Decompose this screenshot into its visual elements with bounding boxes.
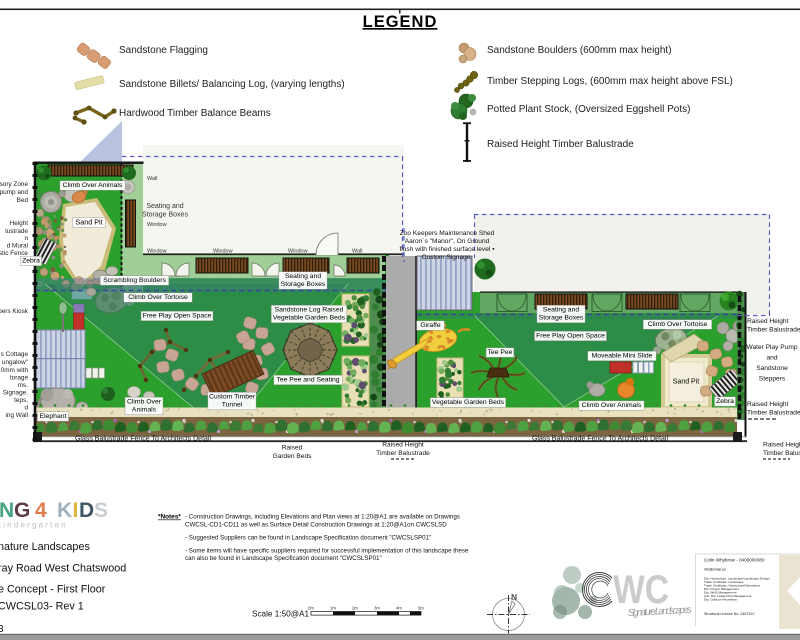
svg-text:Custom Timber: Custom Timber	[209, 394, 256, 401]
svg-text:Window: Window	[147, 222, 167, 228]
svg-text:Wall: Wall	[352, 249, 363, 255]
svg-text:Sandstone Boulders (600mm max: Sandstone Boulders (600mm max height)	[487, 45, 672, 56]
svg-text:Timber Balustrade: Timber Balustrade	[763, 450, 800, 457]
svg-text:Water Play Pump: Water Play Pump	[746, 344, 797, 351]
svg-text:can also be found in Landscape: can also be found in Landscape Specifica…	[185, 555, 382, 562]
svg-text:Timber Stepping Logs, (600mm m: Timber Stepping Logs, (600mm max height …	[487, 76, 733, 87]
svg-text:CWCSL-CD1-CD11 as well as Surf: CWCSL-CD1-CD11 as well as Surface Detail…	[185, 522, 447, 529]
svg-text:Zebra: Zebra	[716, 398, 734, 405]
svg-text:- Construction Drawings, inclu: - Construction Drawings, including Eleva…	[185, 514, 460, 521]
svg-text:5m: 5m	[418, 606, 424, 611]
svg-text:lustrade: lustrade	[5, 228, 28, 235]
svg-text:Structural Licence No. 246732C: Structural Licence No. 246732C	[704, 612, 755, 616]
svg-text:e Concept - First Floor: e Concept - First Floor	[0, 584, 106, 596]
svg-text:Tee Pee: Tee Pee	[488, 349, 513, 356]
svg-text:Scrambling Boulders: Scrambling Boulders	[103, 277, 166, 284]
svg-text:D: D	[79, 499, 94, 522]
svg-text:Glass Balustrade Fence To Arch: Glass Balustrade Fence To Architects Det…	[75, 436, 211, 443]
svg-text:ms.: ms.	[18, 382, 29, 389]
svg-text:pers Kiosk: pers Kiosk	[0, 308, 29, 315]
svg-text:ray Road West Chatswood: ray Road West Chatswood	[0, 563, 126, 575]
svg-text:ustic Fence: ustic Fence	[0, 250, 28, 257]
svg-text:3: 3	[0, 624, 4, 635]
svg-text:Zebra: Zebra	[22, 258, 40, 265]
svg-text:Climb Over Tortoise: Climb Over Tortoise	[128, 294, 188, 301]
svg-text:Raised Height: Raised Height	[382, 442, 424, 449]
svg-text:Free Play Open Space: Free Play Open Space	[536, 333, 605, 340]
svg-text:Bed: Bed	[17, 197, 29, 204]
svg-text:Raised Height: Raised Height	[747, 401, 789, 408]
svg-text:Raised Height Timber Balustrad: Raised Height Timber Balustrade	[487, 139, 634, 150]
svg-text:Window: Window	[147, 249, 167, 255]
svg-text:Hardwood Timber Balance Beams: Hardwood Timber Balance Beams	[119, 108, 271, 119]
svg-text:Timber Balustrade: Timber Balustrade	[376, 450, 430, 457]
svg-text:ing Wall: ing Wall	[6, 412, 29, 419]
svg-text:info@email.au: info@email.au	[704, 568, 726, 572]
svg-text:LEGEND: LEGEND	[363, 13, 438, 31]
svg-text:kindergarten: kindergarten	[0, 521, 68, 530]
svg-text:flush with finished surface le: flush with finished surface level ▪	[399, 246, 494, 253]
svg-text:torage: torage	[10, 375, 29, 382]
svg-text:G: G	[14, 499, 30, 522]
svg-text:Dip. Outdoor Recreation: Dip. Outdoor Recreation	[704, 598, 738, 602]
svg-text:Free Play Open Space: Free Play Open Space	[143, 313, 212, 320]
svg-text:*Notes*: *Notes*	[158, 514, 181, 521]
svg-text:Tunnel: Tunnel	[222, 402, 243, 409]
svg-text:Moveable Mini Slide: Moveable Mini Slide	[592, 353, 653, 360]
svg-text:Seating and: Seating and	[146, 203, 183, 210]
svg-text:1m: 1m	[330, 606, 336, 611]
svg-text:3m: 3m	[374, 606, 380, 611]
svg-text:S: S	[94, 499, 108, 522]
svg-text:Raised Height: Raised Height	[763, 442, 800, 449]
svg-text:Window: Window	[288, 249, 308, 255]
svg-text:Scale 1:50@A1: Scale 1:50@A1	[252, 610, 309, 619]
svg-text:4m: 4m	[396, 606, 402, 611]
svg-text:K: K	[57, 499, 72, 522]
svg-text:Raised: Raised	[282, 445, 303, 452]
svg-text:and: and	[766, 355, 777, 362]
svg-text:pump and: pump and	[0, 189, 28, 196]
svg-text:Elephant: Elephant	[40, 413, 67, 420]
svg-text:Glass Balustrade Fence To Arch: Glass Balustrade Fence To Architects Det…	[532, 436, 668, 443]
svg-text:sory Zone: sory Zone	[0, 181, 28, 188]
svg-text:0mm with: 0mm with	[1, 367, 29, 374]
svg-text:- Some items will have specifi: - Some items will have specific supplier…	[185, 548, 469, 555]
svg-text:Height: Height	[10, 220, 29, 227]
svg-text:Vegetable Garden Beds: Vegetable Garden Beds	[432, 399, 505, 406]
svg-text:Signage.: Signage.	[3, 390, 28, 397]
svg-text:d Mural: d Mural	[7, 243, 28, 250]
svg-text:Zoo Keepers Maintenance Shed: Zoo Keepers Maintenance Shed	[400, 230, 495, 237]
svg-text:n: n	[24, 235, 28, 242]
svg-text:Giraffe: Giraffe	[420, 322, 440, 329]
svg-text:Storage Boxes: Storage Boxes	[142, 212, 188, 219]
svg-text:nature Landscapes: nature Landscapes	[0, 541, 90, 553]
svg-text:Custom Signage.: Custom Signage.	[422, 254, 473, 261]
svg-text:Sandstone: Sandstone	[756, 365, 788, 372]
svg-text:N: N	[511, 592, 517, 602]
svg-text:Vegetable Garden Beds: Vegetable Garden Beds	[273, 315, 346, 322]
svg-text:Sandstone Log Raised: Sandstone Log Raised	[275, 307, 344, 314]
svg-text:Colin Whybrow - 0400000080: Colin Whybrow - 0400000080	[704, 558, 765, 563]
svg-text:Climb Over Animals: Climb Over Animals	[582, 402, 642, 409]
svg-text:0m: 0m	[308, 606, 314, 611]
svg-text:Sandstone Flagging: Sandstone Flagging	[119, 45, 208, 56]
svg-text:Sand Pit: Sand Pit	[75, 217, 102, 226]
svg-text:Sandstone Billets/ Balancing L: Sandstone Billets/ Balancing Log, (varyi…	[119, 79, 345, 90]
svg-text:s Cottage: s Cottage	[1, 351, 29, 358]
svg-text:Timber Balustrade: Timber Balustrade	[747, 327, 800, 334]
svg-text:d: d	[24, 405, 28, 412]
svg-text:Garden Beds: Garden Beds	[273, 453, 313, 460]
svg-text:Aaron`s "Manor", On Ground: Aaron`s "Manor", On Ground	[405, 238, 490, 245]
svg-text:Signature Landscapes: Signature Landscapes	[628, 605, 692, 619]
svg-text:Steppers: Steppers	[759, 376, 786, 383]
svg-text:Storage Boxes: Storage Boxes	[281, 281, 326, 288]
svg-text:Window: Window	[213, 249, 233, 255]
svg-text:Climb Over Animals: Climb Over Animals	[63, 182, 123, 189]
svg-text:Wall: Wall	[147, 176, 158, 182]
svg-text:Climb Over: Climb Over	[127, 399, 162, 406]
svg-text:Raised Height: Raised Height	[747, 318, 789, 325]
svg-text:4: 4	[35, 499, 47, 522]
svg-text:Potted Plant Stock, (Oversized: Potted Plant Stock, (Oversized Eggshell …	[487, 104, 690, 115]
svg-text:- Suggested Suppliers can be f: - Suggested Suppliers can be found in La…	[185, 535, 431, 542]
svg-text:Tee Pee and Seating: Tee Pee and Seating	[276, 377, 339, 384]
svg-text:N: N	[0, 499, 14, 522]
svg-text:ungalow": ungalow"	[2, 359, 28, 366]
svg-text:Timber Balustrade: Timber Balustrade	[747, 410, 800, 417]
svg-text:Seating and: Seating and	[543, 307, 580, 314]
svg-text:Seating and: Seating and	[285, 273, 322, 280]
svg-text:Animals: Animals	[132, 407, 157, 414]
svg-text:I: I	[73, 499, 79, 522]
svg-text:Climb Over Tortoise: Climb Over Tortoise	[648, 321, 708, 328]
svg-text:Sand Pit: Sand Pit	[673, 379, 700, 386]
svg-text:2m: 2m	[352, 606, 358, 611]
svg-text:CWCSL03- Rev 1: CWCSL03- Rev 1	[0, 601, 84, 613]
svg-text:teps,: teps,	[14, 397, 28, 404]
svg-text:Storage Boxes: Storage Boxes	[539, 315, 584, 322]
